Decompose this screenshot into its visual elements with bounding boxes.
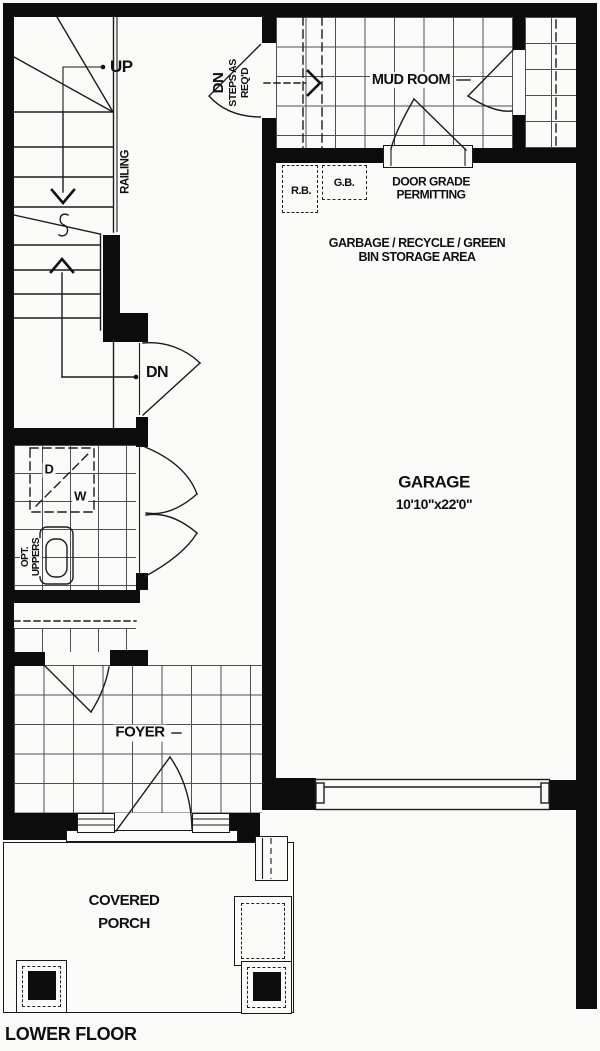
recycle-bin-label: R.B.	[291, 185, 311, 197]
mudroom-label: MUD ROOM	[370, 72, 452, 88]
dn-label: DN	[146, 364, 168, 382]
dn-steps-line1: DN	[211, 59, 228, 107]
up-label: UP	[110, 57, 133, 76]
door-grade-line2: PERMITTING	[392, 189, 470, 202]
foyer-closet-door-swing	[45, 666, 109, 712]
stairs-up	[14, 17, 138, 428]
foyer-label: FOYER	[113, 725, 166, 742]
mudroom-closet-door-swing	[468, 50, 513, 111]
laundry-sink-icon	[40, 527, 73, 584]
covered-porch-label: COVERED PORCH	[89, 889, 160, 935]
garbage-line2: BIN STORAGE AREA	[329, 250, 505, 264]
green-bin-label: G.B.	[334, 177, 355, 189]
laundry-double-doors	[140, 447, 198, 577]
door-grade-note: DOOR GRADE PERMITTING	[392, 176, 470, 203]
dn-steps-line2: STEPS AS	[228, 59, 240, 107]
mudroom-exterior-door-swing	[391, 99, 466, 166]
opt-uppers-line2: UPPERS	[31, 538, 42, 576]
path-right-arrow-icon	[308, 71, 320, 95]
porch-side-step-lines	[263, 838, 272, 879]
covered-porch-line1: COVERED	[89, 889, 160, 912]
railing-label: RAILING	[120, 148, 133, 196]
garage-door	[315, 780, 550, 810]
garbage-line1: GARBAGE / RECYCLE / GREEN	[329, 236, 505, 250]
floor-title: LOWER FLOOR	[5, 1024, 137, 1044]
opt-uppers-line1: OPT.	[20, 538, 31, 576]
garbage-note: GARBAGE / RECYCLE / GREEN BIN STORAGE AR…	[329, 236, 505, 264]
covered-porch-line2: PORCH	[89, 912, 160, 935]
garage-dims: 10'10"x22'0"	[396, 497, 472, 513]
door-grade-line1: DOOR GRADE	[392, 176, 470, 189]
dn-steps-note: DN STEPS AS REQ'D	[211, 59, 251, 107]
front-entry-door-swing	[116, 757, 192, 831]
washer-label: W	[72, 490, 88, 505]
mudroom-optional-steps	[264, 17, 322, 148]
sidelight-panes	[77, 819, 230, 825]
opt-uppers-note: OPT. UPPERS	[20, 538, 42, 576]
garage-label: GARAGE	[398, 472, 470, 491]
dryer-label: D	[43, 463, 56, 478]
dn-steps-line3: REQ'D	[239, 59, 251, 107]
floor-plan: UP RAILING DN STEPS AS REQ'D MUD ROOM DO…	[0, 0, 600, 1051]
